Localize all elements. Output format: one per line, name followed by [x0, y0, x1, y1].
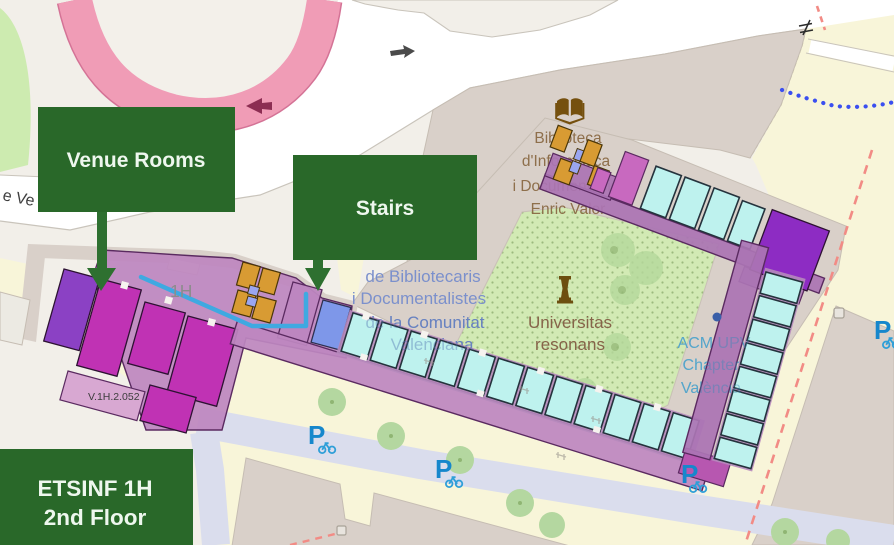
- svg-text:i Documentalistes: i Documentalistes: [352, 289, 486, 308]
- svg-text:Venue Rooms: Venue Rooms: [67, 149, 206, 172]
- svg-text:2nd Floor: 2nd Floor: [44, 505, 147, 530]
- svg-text:resonans: resonans: [535, 335, 605, 354]
- svg-text:Stairs: Stairs: [356, 197, 414, 220]
- svg-text:P: P: [308, 420, 325, 450]
- svg-text:1H: 1H: [170, 281, 192, 301]
- svg-text:València: València: [681, 380, 741, 397]
- svg-text:Chapter: Chapter: [683, 357, 741, 374]
- svg-text:Valenciana: Valenciana: [391, 335, 474, 354]
- svg-text:ACM UPV: ACM UPV: [678, 335, 751, 352]
- svg-text:V.1H.2.052: V.1H.2.052: [88, 391, 140, 403]
- svg-text:Universitas: Universitas: [528, 313, 612, 332]
- svg-text:de Bibliotecaris: de Bibliotecaris: [365, 267, 480, 286]
- svg-text:P: P: [435, 454, 452, 484]
- svg-text:de la Comunitat: de la Comunitat: [365, 313, 484, 332]
- svg-text:ETSINF 1H: ETSINF 1H: [37, 476, 152, 501]
